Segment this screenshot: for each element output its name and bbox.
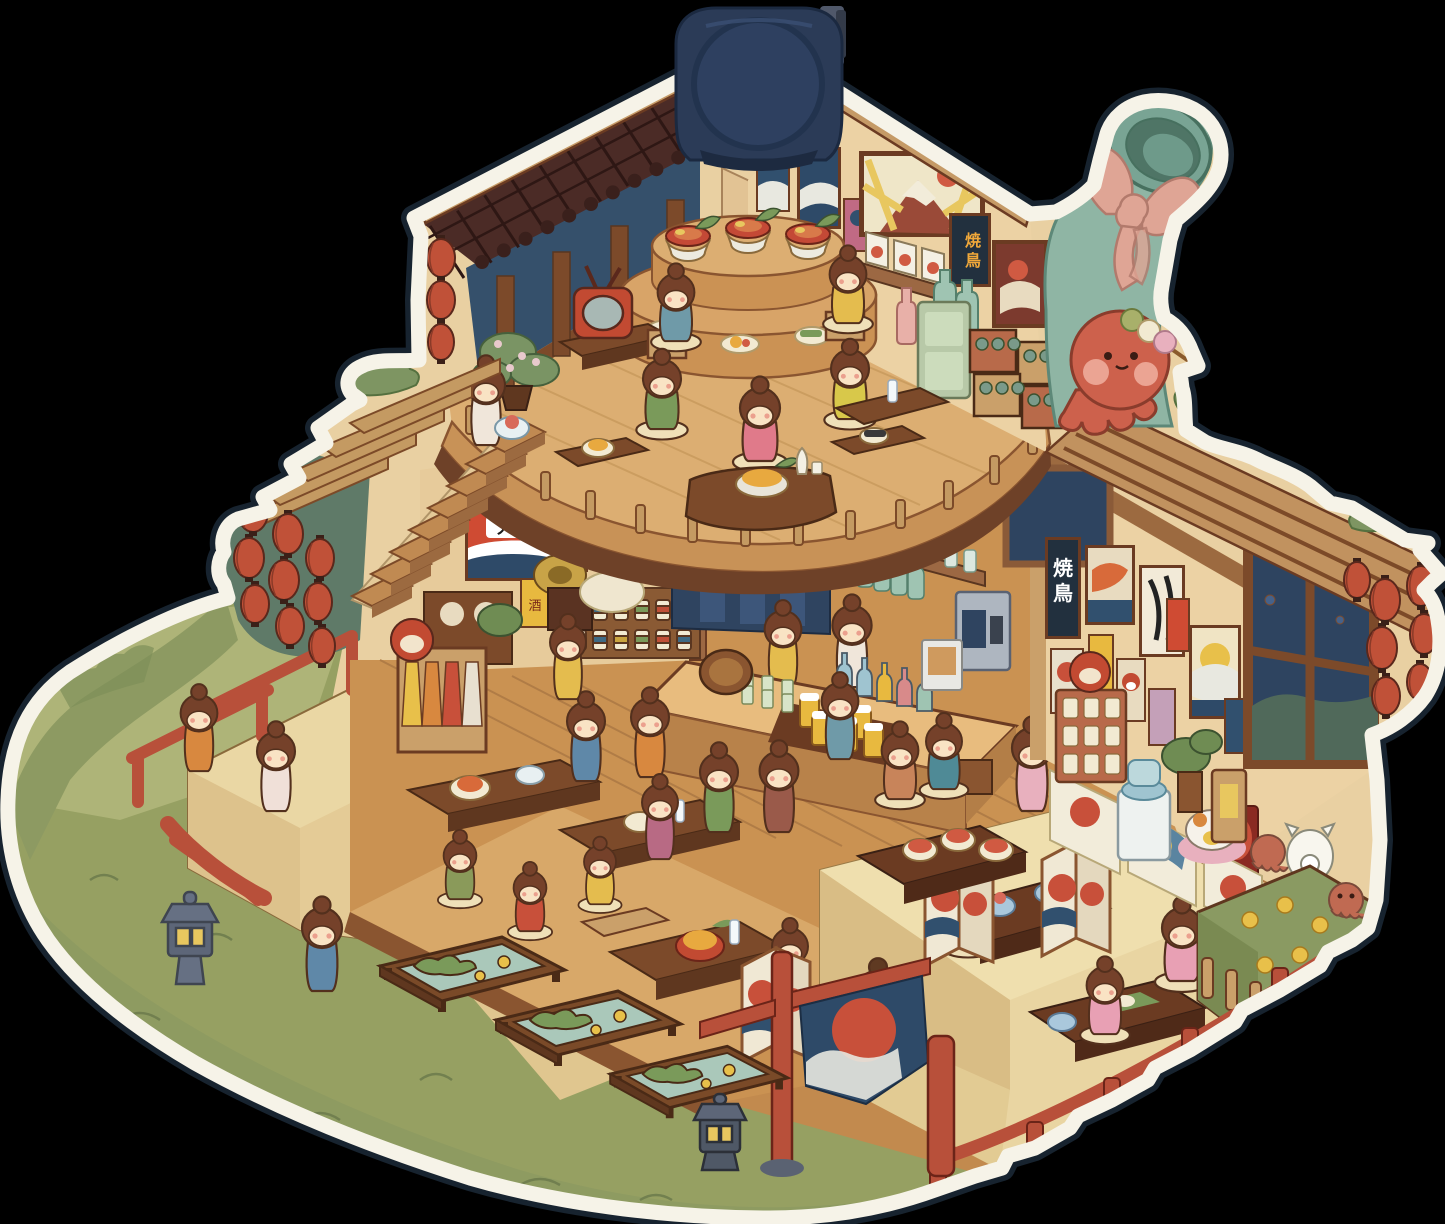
svg-text:酒: 酒: [528, 598, 541, 613]
svg-text:鳥: 鳥: [965, 251, 981, 270]
svg-text:鳥: 鳥: [1053, 581, 1073, 605]
svg-text:焼: 焼: [965, 231, 981, 250]
svg-text:焼: 焼: [1053, 557, 1073, 580]
